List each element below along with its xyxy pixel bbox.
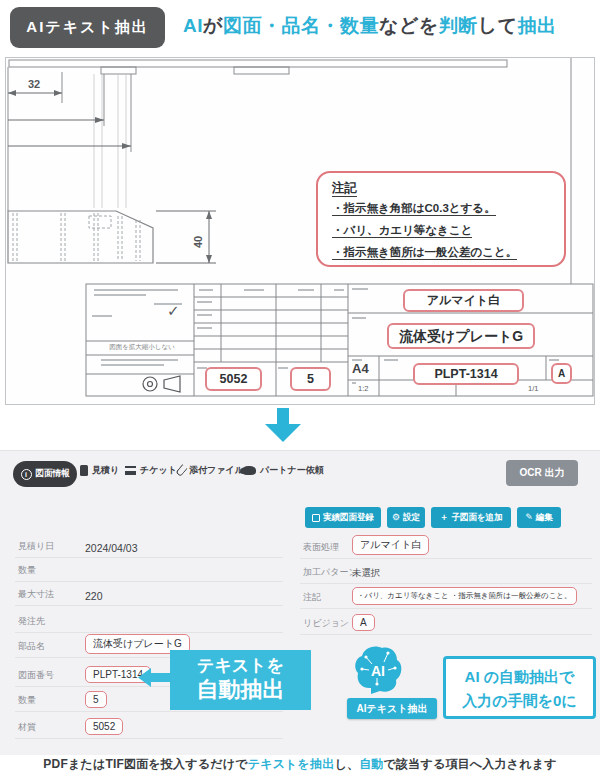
register-actual-drawing-button[interactable]: 実績図面登録	[305, 507, 381, 528]
tab-label: チケット	[140, 464, 177, 477]
field-row-material: 材質 5052	[15, 715, 283, 739]
down-arrow-icon	[263, 408, 303, 442]
page: AIテキスト抽出 AIが図面・品名・数量などを判断して抽出	[0, 0, 600, 778]
button-label: 設定	[403, 512, 420, 524]
field-label: 数量	[18, 694, 36, 707]
tab-label: 添付ファイル	[189, 464, 244, 477]
field-label: 部品名	[18, 640, 45, 653]
estimate-date-field[interactable]: 2024/04/03	[85, 542, 138, 554]
field-row-quantity: 数量	[15, 566, 283, 582]
headline-part: などを	[379, 15, 439, 36]
headline-part: AI	[183, 15, 203, 36]
headline: AIが図面・品名・数量などを判断して抽出	[183, 13, 557, 39]
tab-estimate[interactable]: 見積り	[80, 464, 119, 477]
tab-label: 図面情報	[36, 468, 70, 480]
field-row-estimate-date: 見積り日 2024/04/03	[15, 541, 283, 558]
field-row-revision: リビジョン A	[300, 614, 592, 635]
titleblock-sheet-number: 1/1	[528, 384, 538, 393]
titleblock-no-scale-note: 図面を拡大縮小しない	[90, 343, 194, 352]
tab-ticket[interactable]: チケット	[125, 464, 177, 477]
footer-part: 自動	[359, 757, 383, 771]
field-label: 表面処理	[303, 541, 339, 554]
note-line: ・バリ、カエリ等なきこと	[332, 224, 472, 238]
field-row-notes: 注記 ・バリ、カエリ等なきこと ・指示無き箇所は一般公差のこと。	[300, 588, 592, 609]
dimension-32: 32	[28, 78, 40, 90]
field-label: 材質	[18, 721, 36, 734]
notes-field[interactable]: ・バリ、カエリ等なきこと ・指示無き箇所は一般公差のこと。	[352, 587, 577, 605]
check-mark-icon: ✓	[167, 302, 180, 320]
left-arrow-icon	[138, 668, 170, 687]
info-icon: i	[21, 469, 32, 480]
ai-text-extract-badge: AIテキスト抽出	[347, 698, 437, 719]
gear-icon: ⚙	[392, 513, 400, 522]
tab-label: パートナー依頼	[260, 464, 324, 477]
footer-caption: PDFまたはTIF図面を投入するだけでテキストを抽出し、自動で該当する項目へ入力…	[0, 756, 600, 773]
ticket-list-icon	[125, 466, 136, 475]
callout-line: 入力の手間を0に	[446, 689, 593, 713]
headline-part: 抽出	[518, 15, 557, 36]
titleblock-paper-size: A4	[352, 361, 369, 376]
projection-symbol-icon	[143, 376, 180, 392]
note-line: ・指示無き角部はC0.3とする。	[332, 202, 496, 216]
field-label: 図面番号	[18, 669, 54, 682]
material-field[interactable]: 5052	[85, 718, 123, 735]
titleblock-revision: A	[551, 363, 572, 384]
button-label: 編集	[536, 512, 553, 524]
ai-brain-label: AI	[371, 663, 385, 679]
dimension-40: 40	[192, 236, 204, 248]
field-label: 発注先	[18, 615, 45, 628]
field-label: 最大寸法	[18, 588, 54, 601]
footer-part: PDFまたはTIF図面を投入するだけで	[43, 757, 247, 771]
tab-drawing-info[interactable]: i 図面情報	[13, 461, 77, 487]
callout-line: 自動抽出	[170, 677, 311, 703]
plus-icon: ＋	[439, 513, 448, 522]
max-dimension-field[interactable]: 220	[85, 590, 103, 602]
footer-part: テキストを抽出	[248, 757, 335, 771]
headline-part: 判断	[439, 15, 478, 36]
tab-label: 見積り	[92, 464, 119, 477]
footer-part: で該当する項目へ入力されます	[384, 757, 557, 771]
ai-brain-icon: AI	[352, 644, 408, 698]
callout-line: AI の自動抽出で	[446, 665, 593, 689]
quantity2-field[interactable]: 5	[85, 691, 107, 708]
auto-extract-callout: テキストを 自動抽出	[170, 650, 311, 710]
revision-field[interactable]: A	[352, 614, 375, 631]
surface-finish-field[interactable]: アルマイト白	[352, 535, 429, 555]
technical-drawing: 32	[5, 57, 595, 405]
field-label: リビジョン	[303, 617, 349, 630]
tab-partner-request[interactable]: パートナー依頼	[242, 464, 324, 477]
process-pattern-field[interactable]: 未選択	[352, 567, 381, 580]
headline-part: 図面・品名・数量	[223, 15, 379, 36]
titleblock-drawing-number: PLPT-1314	[413, 363, 519, 385]
note-title: 注記	[332, 181, 357, 197]
handshake-icon	[242, 466, 256, 475]
field-row-process-pattern: 加工パターン 未選択	[300, 568, 592, 584]
titleblock-part-name: 流体受けプレートG	[387, 323, 535, 349]
titleblock-quantity: 5	[290, 367, 331, 391]
register-icon	[312, 514, 320, 522]
drawing-note-callout: 注記 ・指示無き角部はC0.3とする。 ・バリ、カエリ等なきこと ・指示無き箇所…	[316, 171, 566, 267]
titleblock-surface-finish: アルマイト白	[403, 289, 524, 312]
settings-button[interactable]: ⚙ 設定	[387, 507, 425, 528]
zero-input-callout: AI の自動抽出で 入力の手間を0に	[443, 656, 596, 719]
estimate-icon	[80, 465, 88, 476]
titleblock-material: 5052	[205, 367, 262, 391]
note-line: ・指示無き箇所は一般公差のこと。	[332, 246, 517, 260]
field-label: 注記	[303, 591, 321, 604]
headline-part: して	[478, 15, 518, 36]
button-label: 実績図面登録	[323, 512, 374, 524]
field-label: 数量	[18, 564, 36, 577]
paperclip-icon	[175, 464, 187, 477]
headline-part: が	[203, 15, 223, 36]
ocr-output-button[interactable]: OCR 出力	[506, 460, 578, 486]
field-row-max-dimension: 最大寸法 220	[15, 590, 283, 606]
button-label: 子図面を追加	[451, 512, 502, 524]
add-child-drawing-button[interactable]: ＋ 子図面を追加	[431, 507, 511, 528]
field-label: 加工パターン	[303, 566, 358, 579]
callout-line: テキストを	[170, 655, 311, 677]
footer-part: し、	[334, 757, 359, 771]
edit-button[interactable]: ✎ 編集	[517, 507, 561, 528]
field-row-supplier: 発注先	[15, 616, 283, 633]
field-row-surface-finish: 表面処理 アルマイト白	[300, 539, 592, 559]
field-label: 見積り日	[18, 540, 54, 553]
titleblock-scale: 1:2	[358, 384, 368, 393]
feature-badge: AIテキスト抽出	[10, 7, 165, 48]
pencil-icon: ✎	[525, 513, 533, 522]
tab-attachments[interactable]: 添付ファイル	[178, 464, 244, 477]
